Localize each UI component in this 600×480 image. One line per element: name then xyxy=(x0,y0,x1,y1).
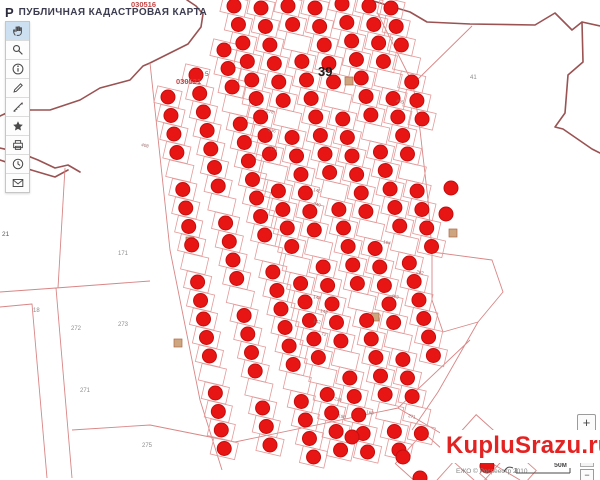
parcel-marker[interactable] xyxy=(354,71,368,85)
parcel-marker[interactable] xyxy=(376,55,390,69)
parcel-marker[interactable] xyxy=(414,427,428,441)
parcel-marker[interactable] xyxy=(276,203,290,217)
parcel-marker[interactable] xyxy=(196,105,210,119)
parcel-marker[interactable] xyxy=(290,149,304,163)
parcel-marker[interactable] xyxy=(361,445,375,459)
parcel-marker[interactable] xyxy=(214,423,228,437)
map-label: 143 xyxy=(320,308,329,315)
parcel-marker[interactable] xyxy=(167,127,181,141)
parcel-cell[interactable] xyxy=(166,160,194,182)
parcel-marker[interactable] xyxy=(199,331,213,345)
parcel-marker[interactable] xyxy=(359,205,373,219)
building-footprint xyxy=(174,339,182,347)
parcel-marker[interactable] xyxy=(240,55,254,69)
parcel-marker[interactable] xyxy=(401,371,415,385)
parcel-cell[interactable] xyxy=(384,330,412,352)
parcel-marker[interactable] xyxy=(389,20,403,34)
parcel-marker[interactable] xyxy=(258,228,272,242)
parcel-boundary-line xyxy=(432,252,503,332)
building-footprint xyxy=(449,229,457,237)
parcel-marker[interactable] xyxy=(237,309,251,323)
parcel-cell[interactable] xyxy=(181,252,209,274)
parcel-marker[interactable] xyxy=(230,272,244,286)
parcel-marker[interactable] xyxy=(410,184,424,198)
parcel-cell[interactable] xyxy=(226,286,254,308)
parcel-marker[interactable] xyxy=(425,240,439,254)
parcel-boundary-line xyxy=(56,281,150,288)
watermark: KupluSrazu.ru xyxy=(440,430,600,463)
parcel-marker[interactable] xyxy=(337,221,351,235)
parcel-boundary-line xyxy=(0,288,72,478)
parcel-marker[interactable] xyxy=(217,43,231,57)
parcel-marker[interactable] xyxy=(394,38,408,52)
parcel-cell[interactable] xyxy=(198,363,226,385)
parcel-marker[interactable] xyxy=(221,62,235,76)
parcel-marker[interactable] xyxy=(182,220,196,234)
parcel-cell[interactable] xyxy=(376,402,404,424)
info-tool-button[interactable] xyxy=(6,60,29,79)
parcel-marker[interactable] xyxy=(304,92,318,106)
parcel-marker[interactable] xyxy=(208,161,222,175)
parcel-marker[interactable] xyxy=(382,297,396,311)
parcel-marker[interactable] xyxy=(334,443,348,457)
feedback-icon xyxy=(11,176,25,190)
parcel-marker[interactable] xyxy=(241,154,255,168)
parcel-marker[interactable] xyxy=(334,334,348,348)
parcel-marker[interactable] xyxy=(321,279,335,293)
parcel-cell[interactable] xyxy=(331,348,359,370)
parcel-cell[interactable] xyxy=(320,180,348,202)
parcel-marker[interactable] xyxy=(164,109,178,123)
parcel-marker[interactable] xyxy=(225,80,239,94)
parcel-marker[interactable] xyxy=(281,0,295,13)
parcel-marker[interactable] xyxy=(179,201,193,215)
parcel-marker[interactable] xyxy=(298,295,312,309)
parcel-marker[interactable] xyxy=(294,395,308,409)
parcel-marker[interactable] xyxy=(200,124,214,138)
parcel-marker[interactable] xyxy=(285,240,299,254)
history-tool-button[interactable] xyxy=(6,155,29,174)
parcel-marker[interactable] xyxy=(345,430,359,444)
parcel-marker[interactable] xyxy=(378,388,392,402)
parcel-marker[interactable] xyxy=(325,406,339,420)
favorites-icon xyxy=(11,119,25,133)
parcel-marker[interactable] xyxy=(405,390,419,404)
map-label: 271 xyxy=(408,413,417,420)
parcel-marker[interactable] xyxy=(377,279,391,293)
parcel-marker[interactable] xyxy=(417,312,431,326)
map-label: 72 xyxy=(321,331,327,337)
parcel-marker[interactable] xyxy=(241,327,255,341)
parcel-marker[interactable] xyxy=(391,110,405,124)
pan-icon xyxy=(11,24,25,38)
parcel-marker[interactable] xyxy=(266,265,280,279)
parcel-marker[interactable] xyxy=(226,253,240,267)
parcel-marker[interactable] xyxy=(176,183,190,197)
parcel-marker[interactable] xyxy=(300,73,314,87)
parcel-marker[interactable] xyxy=(329,425,343,439)
parcel-marker[interactable] xyxy=(388,201,402,215)
parcel-marker[interactable] xyxy=(208,386,222,400)
parcel-marker[interactable] xyxy=(316,260,330,274)
parcel-cell[interactable] xyxy=(362,122,390,144)
parcel-marker[interactable] xyxy=(258,20,272,34)
building-footprint xyxy=(345,77,353,85)
parcel-marker[interactable] xyxy=(219,216,233,230)
scale-label: 50м xyxy=(554,462,567,469)
measure-tool-button[interactable] xyxy=(6,98,29,117)
parcel-boundary-line xyxy=(150,63,222,470)
parcel-marker[interactable] xyxy=(227,0,241,13)
parcel-cell[interactable] xyxy=(305,237,333,259)
parcel-marker[interactable] xyxy=(248,364,262,378)
parcel-marker[interactable] xyxy=(412,293,426,307)
parcel-marker[interactable] xyxy=(350,168,364,182)
parcel-marker[interactable] xyxy=(410,94,424,108)
parcel-marker[interactable] xyxy=(352,408,366,422)
parcel-marker[interactable] xyxy=(278,321,292,335)
parcel-cell[interactable] xyxy=(356,219,384,241)
parcel-marker[interactable] xyxy=(307,332,321,346)
map-label: 408 xyxy=(141,142,150,149)
parcel-marker[interactable] xyxy=(354,186,368,200)
print-icon xyxy=(11,138,25,152)
parcel-marker[interactable] xyxy=(298,186,312,200)
parcel-cell[interactable] xyxy=(245,378,273,400)
parcel-boundary-line xyxy=(0,304,47,478)
parcel-marker[interactable] xyxy=(236,36,250,50)
parcel-marker[interactable] xyxy=(294,277,308,291)
parcel-marker[interactable] xyxy=(193,87,207,101)
parcel-marker[interactable] xyxy=(311,351,325,365)
parcel-marker[interactable] xyxy=(222,235,236,249)
parcel-marker[interactable] xyxy=(372,36,386,50)
parcel-marker[interactable] xyxy=(185,238,199,252)
parcel-marker[interactable] xyxy=(313,129,327,143)
parcel-marker[interactable] xyxy=(407,275,421,289)
parcel-marker[interactable] xyxy=(271,184,285,198)
parcel-marker[interactable] xyxy=(267,57,281,71)
parcel-marker[interactable] xyxy=(294,168,308,182)
parcel-marker[interactable] xyxy=(197,312,211,326)
parcel-marker[interactable] xyxy=(374,369,388,383)
map-label: 030521 xyxy=(176,77,201,86)
feedback-tool-button[interactable] xyxy=(6,174,29,192)
parcel-marker[interactable] xyxy=(420,221,434,235)
parcel-marker[interactable] xyxy=(254,1,268,15)
parcel-marker[interactable] xyxy=(161,90,175,104)
parcel-marker[interactable] xyxy=(233,117,247,131)
parcel-marker[interactable] xyxy=(272,75,286,89)
parcel-cell[interactable] xyxy=(222,94,250,116)
parcel-marker[interactable] xyxy=(298,413,312,427)
parcel-marker[interactable] xyxy=(359,90,373,104)
parcel-cell[interactable] xyxy=(390,233,418,255)
parcel-marker[interactable] xyxy=(204,142,218,156)
parcel-marker[interactable] xyxy=(323,166,337,180)
parcel-marker[interactable] xyxy=(413,471,427,480)
favorites-tool-button[interactable] xyxy=(6,117,29,136)
history-icon xyxy=(11,157,25,171)
parcel-marker[interactable] xyxy=(231,18,245,32)
map-canvas[interactable]: 0305160305213952117118272273271275414052… xyxy=(0,0,600,480)
draw-tool-button[interactable] xyxy=(6,79,29,98)
map-label: 18 xyxy=(33,308,40,314)
parcel-marker[interactable] xyxy=(422,330,436,344)
parcel-marker[interactable] xyxy=(350,277,364,291)
pan-tool-button[interactable] xyxy=(6,22,29,41)
parcel-marker[interactable] xyxy=(332,203,346,217)
parcel-marker[interactable] xyxy=(426,349,440,363)
parcel-marker[interactable] xyxy=(318,147,332,161)
parcel-marker[interactable] xyxy=(346,258,360,272)
map-label: 171 xyxy=(118,251,129,257)
parcel-marker[interactable] xyxy=(393,219,407,233)
parcel-marker[interactable] xyxy=(249,92,263,106)
parcel-marker[interactable] xyxy=(263,38,277,52)
parcel-marker[interactable] xyxy=(309,110,323,124)
parcel-marker[interactable] xyxy=(364,108,378,122)
parcel-marker[interactable] xyxy=(274,302,288,316)
parcel-marker[interactable] xyxy=(384,1,398,15)
parcel-marker[interactable] xyxy=(245,73,259,87)
parcel-marker[interactable] xyxy=(349,53,363,67)
parcel-marker[interactable] xyxy=(378,164,392,178)
map-label: 5 xyxy=(205,71,209,78)
parcel-marker[interactable] xyxy=(254,210,268,224)
map-toolbar xyxy=(5,21,30,193)
parcel-marker[interactable] xyxy=(245,346,259,360)
parcel-marker[interactable] xyxy=(405,75,419,89)
parcel-cell[interactable] xyxy=(255,242,283,264)
measure-icon xyxy=(11,100,25,114)
info-icon xyxy=(11,62,25,76)
map-label: 39 xyxy=(318,64,332,79)
parcel-marker[interactable] xyxy=(270,284,284,298)
parcel-cell[interactable] xyxy=(348,291,376,313)
map-label: 145 xyxy=(313,187,322,194)
parcel-marker[interactable] xyxy=(303,205,317,219)
parcel-marker[interactable] xyxy=(280,221,294,235)
parcel-marker[interactable] xyxy=(202,349,216,363)
parcel-marker[interactable] xyxy=(320,388,334,402)
parcel-cell[interactable] xyxy=(309,365,337,387)
parcel-marker[interactable] xyxy=(396,129,410,143)
parcel-marker[interactable] xyxy=(237,136,251,150)
quarter-boundary-line xyxy=(555,22,600,153)
parcel-marker[interactable] xyxy=(276,94,290,108)
cadastral-map-app: 0305160305213952117118272273271275414052… xyxy=(0,0,600,480)
map-label: 271 xyxy=(80,388,91,394)
parcel-marker[interactable] xyxy=(286,18,300,32)
parcel-cell[interactable] xyxy=(398,161,426,183)
parcel-marker[interactable] xyxy=(308,1,322,15)
parcel-marker[interactable] xyxy=(415,203,429,217)
app-header: Р ПУБЛИЧНАЯ КАДАСТРОВАЯ КАРТА xyxy=(5,6,207,19)
parcel-marker[interactable] xyxy=(396,450,410,464)
parcel-marker[interactable] xyxy=(282,339,296,353)
parcel-cell[interactable] xyxy=(283,32,311,54)
parcel-marker[interactable] xyxy=(341,240,355,254)
parcel-marker[interactable] xyxy=(439,207,453,221)
parcel-marker[interactable] xyxy=(211,179,225,193)
parcel-marker[interactable] xyxy=(286,358,300,372)
parcel-cell[interactable] xyxy=(274,108,302,130)
parcel-marker[interactable] xyxy=(387,425,401,439)
parcel-marker[interactable] xyxy=(415,112,429,126)
parcel-marker[interactable] xyxy=(191,275,205,289)
parcel-marker[interactable] xyxy=(364,332,378,346)
map-label: 228 xyxy=(334,396,343,403)
parcel-marker[interactable] xyxy=(259,420,273,434)
parcel-marker[interactable] xyxy=(250,191,264,205)
parcel-marker[interactable] xyxy=(335,0,349,11)
parcel-marker[interactable] xyxy=(256,401,270,415)
parcel-marker[interactable] xyxy=(313,20,327,34)
parcel-marker[interactable] xyxy=(317,38,331,52)
parcel-marker[interactable] xyxy=(340,131,354,145)
map-label: 272 xyxy=(71,326,82,332)
parcel-marker[interactable] xyxy=(402,256,416,270)
parcel-marker[interactable] xyxy=(343,371,357,385)
parcel-marker[interactable] xyxy=(387,316,401,330)
parcel-marker[interactable] xyxy=(347,390,361,404)
parcel-marker[interactable] xyxy=(340,16,354,30)
parcel-marker[interactable] xyxy=(373,260,387,274)
parcel-marker[interactable] xyxy=(329,316,343,330)
parcel-marker[interactable] xyxy=(396,353,410,367)
parcel-marker[interactable] xyxy=(211,405,225,419)
parcel-cell[interactable] xyxy=(260,161,288,183)
parcel-cell[interactable] xyxy=(282,254,310,276)
print-tool-button[interactable] xyxy=(6,136,29,155)
parcel-cell[interactable] xyxy=(208,193,236,215)
parcel-cell[interactable] xyxy=(324,89,352,111)
parcel-marker[interactable] xyxy=(373,145,387,159)
parcel-marker[interactable] xyxy=(444,181,458,195)
search-tool-button[interactable] xyxy=(6,41,29,60)
parcel-marker[interactable] xyxy=(307,223,321,237)
parcel-marker[interactable] xyxy=(217,442,231,456)
parcel-boundary-line xyxy=(58,168,65,288)
rosreestr-logo-icon: Р xyxy=(5,6,14,19)
parcel-cell[interactable] xyxy=(283,372,311,394)
parcel-marker[interactable] xyxy=(345,149,359,163)
parcel-marker[interactable] xyxy=(285,131,299,145)
parcel-marker[interactable] xyxy=(400,147,414,161)
map-label: 21 xyxy=(2,231,10,238)
parcel-marker[interactable] xyxy=(170,146,184,160)
parcel-marker[interactable] xyxy=(345,34,359,48)
parcel-marker[interactable] xyxy=(295,55,309,69)
parcel-marker[interactable] xyxy=(369,351,383,365)
parcel-marker[interactable] xyxy=(360,314,374,328)
map-label: 273 xyxy=(118,322,129,328)
parcel-marker[interactable] xyxy=(245,173,259,187)
map-label: 41 xyxy=(470,75,477,81)
map-label: 104 xyxy=(383,239,392,246)
parcel-marker[interactable] xyxy=(302,432,316,446)
parcel-marker[interactable] xyxy=(383,182,397,196)
search-icon xyxy=(11,43,25,57)
parcel-marker[interactable] xyxy=(194,294,208,308)
parcel-marker[interactable] xyxy=(362,0,376,13)
app-title: ПУБЛИЧНАЯ КАДАСТРОВАЯ КАРТА xyxy=(19,7,207,18)
parcel-marker[interactable] xyxy=(367,18,381,32)
parcel-marker[interactable] xyxy=(263,438,277,452)
parcel-marker[interactable] xyxy=(368,242,382,256)
map-label: 275 xyxy=(142,443,153,449)
parcel-marker[interactable] xyxy=(307,450,321,464)
parcel-marker[interactable] xyxy=(336,112,350,126)
draw-icon xyxy=(11,81,25,95)
